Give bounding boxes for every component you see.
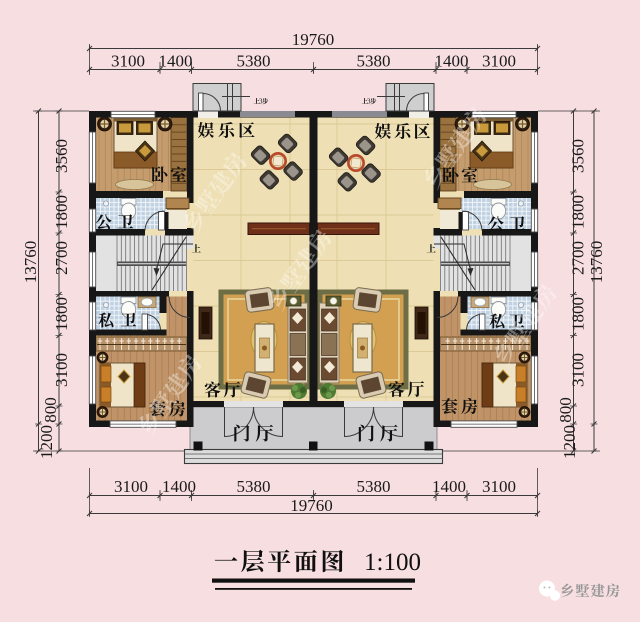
- svg-text:5380: 5380: [357, 477, 391, 496]
- svg-text:1800: 1800: [52, 297, 71, 331]
- svg-text:3: 3: [367, 98, 371, 106]
- svg-text:3: 3: [259, 98, 263, 106]
- svg-text:3100: 3100: [52, 353, 71, 387]
- svg-text:5380: 5380: [237, 52, 271, 71]
- svg-text:3100: 3100: [111, 52, 145, 71]
- svg-text:2700: 2700: [569, 241, 588, 275]
- svg-text:3560: 3560: [52, 139, 71, 173]
- svg-text:3100: 3100: [482, 52, 516, 71]
- svg-text:13760: 13760: [21, 241, 40, 284]
- svg-text:1200: 1200: [560, 425, 579, 459]
- svg-text:3560: 3560: [569, 139, 588, 173]
- svg-text:800: 800: [556, 397, 575, 423]
- svg-text:1400: 1400: [159, 52, 193, 71]
- svg-text:1400: 1400: [162, 477, 196, 496]
- svg-text:5380: 5380: [357, 52, 391, 71]
- svg-text:3100: 3100: [569, 353, 588, 387]
- svg-text:3100: 3100: [114, 477, 148, 496]
- svg-text:3100: 3100: [482, 477, 516, 496]
- svg-text:19760: 19760: [292, 30, 335, 49]
- svg-text:5380: 5380: [237, 477, 271, 496]
- svg-text:1:100: 1:100: [364, 549, 421, 576]
- svg-text:1800: 1800: [569, 195, 588, 229]
- svg-text:1800: 1800: [52, 195, 71, 229]
- svg-text:800: 800: [41, 397, 60, 423]
- svg-text:1200: 1200: [37, 425, 56, 459]
- svg-text:2700: 2700: [52, 241, 71, 275]
- svg-text:13760: 13760: [587, 241, 606, 284]
- svg-text:1400: 1400: [435, 52, 469, 71]
- svg-text:19760: 19760: [290, 496, 333, 515]
- svg-text:1400: 1400: [432, 477, 466, 496]
- svg-text:1800: 1800: [569, 297, 588, 331]
